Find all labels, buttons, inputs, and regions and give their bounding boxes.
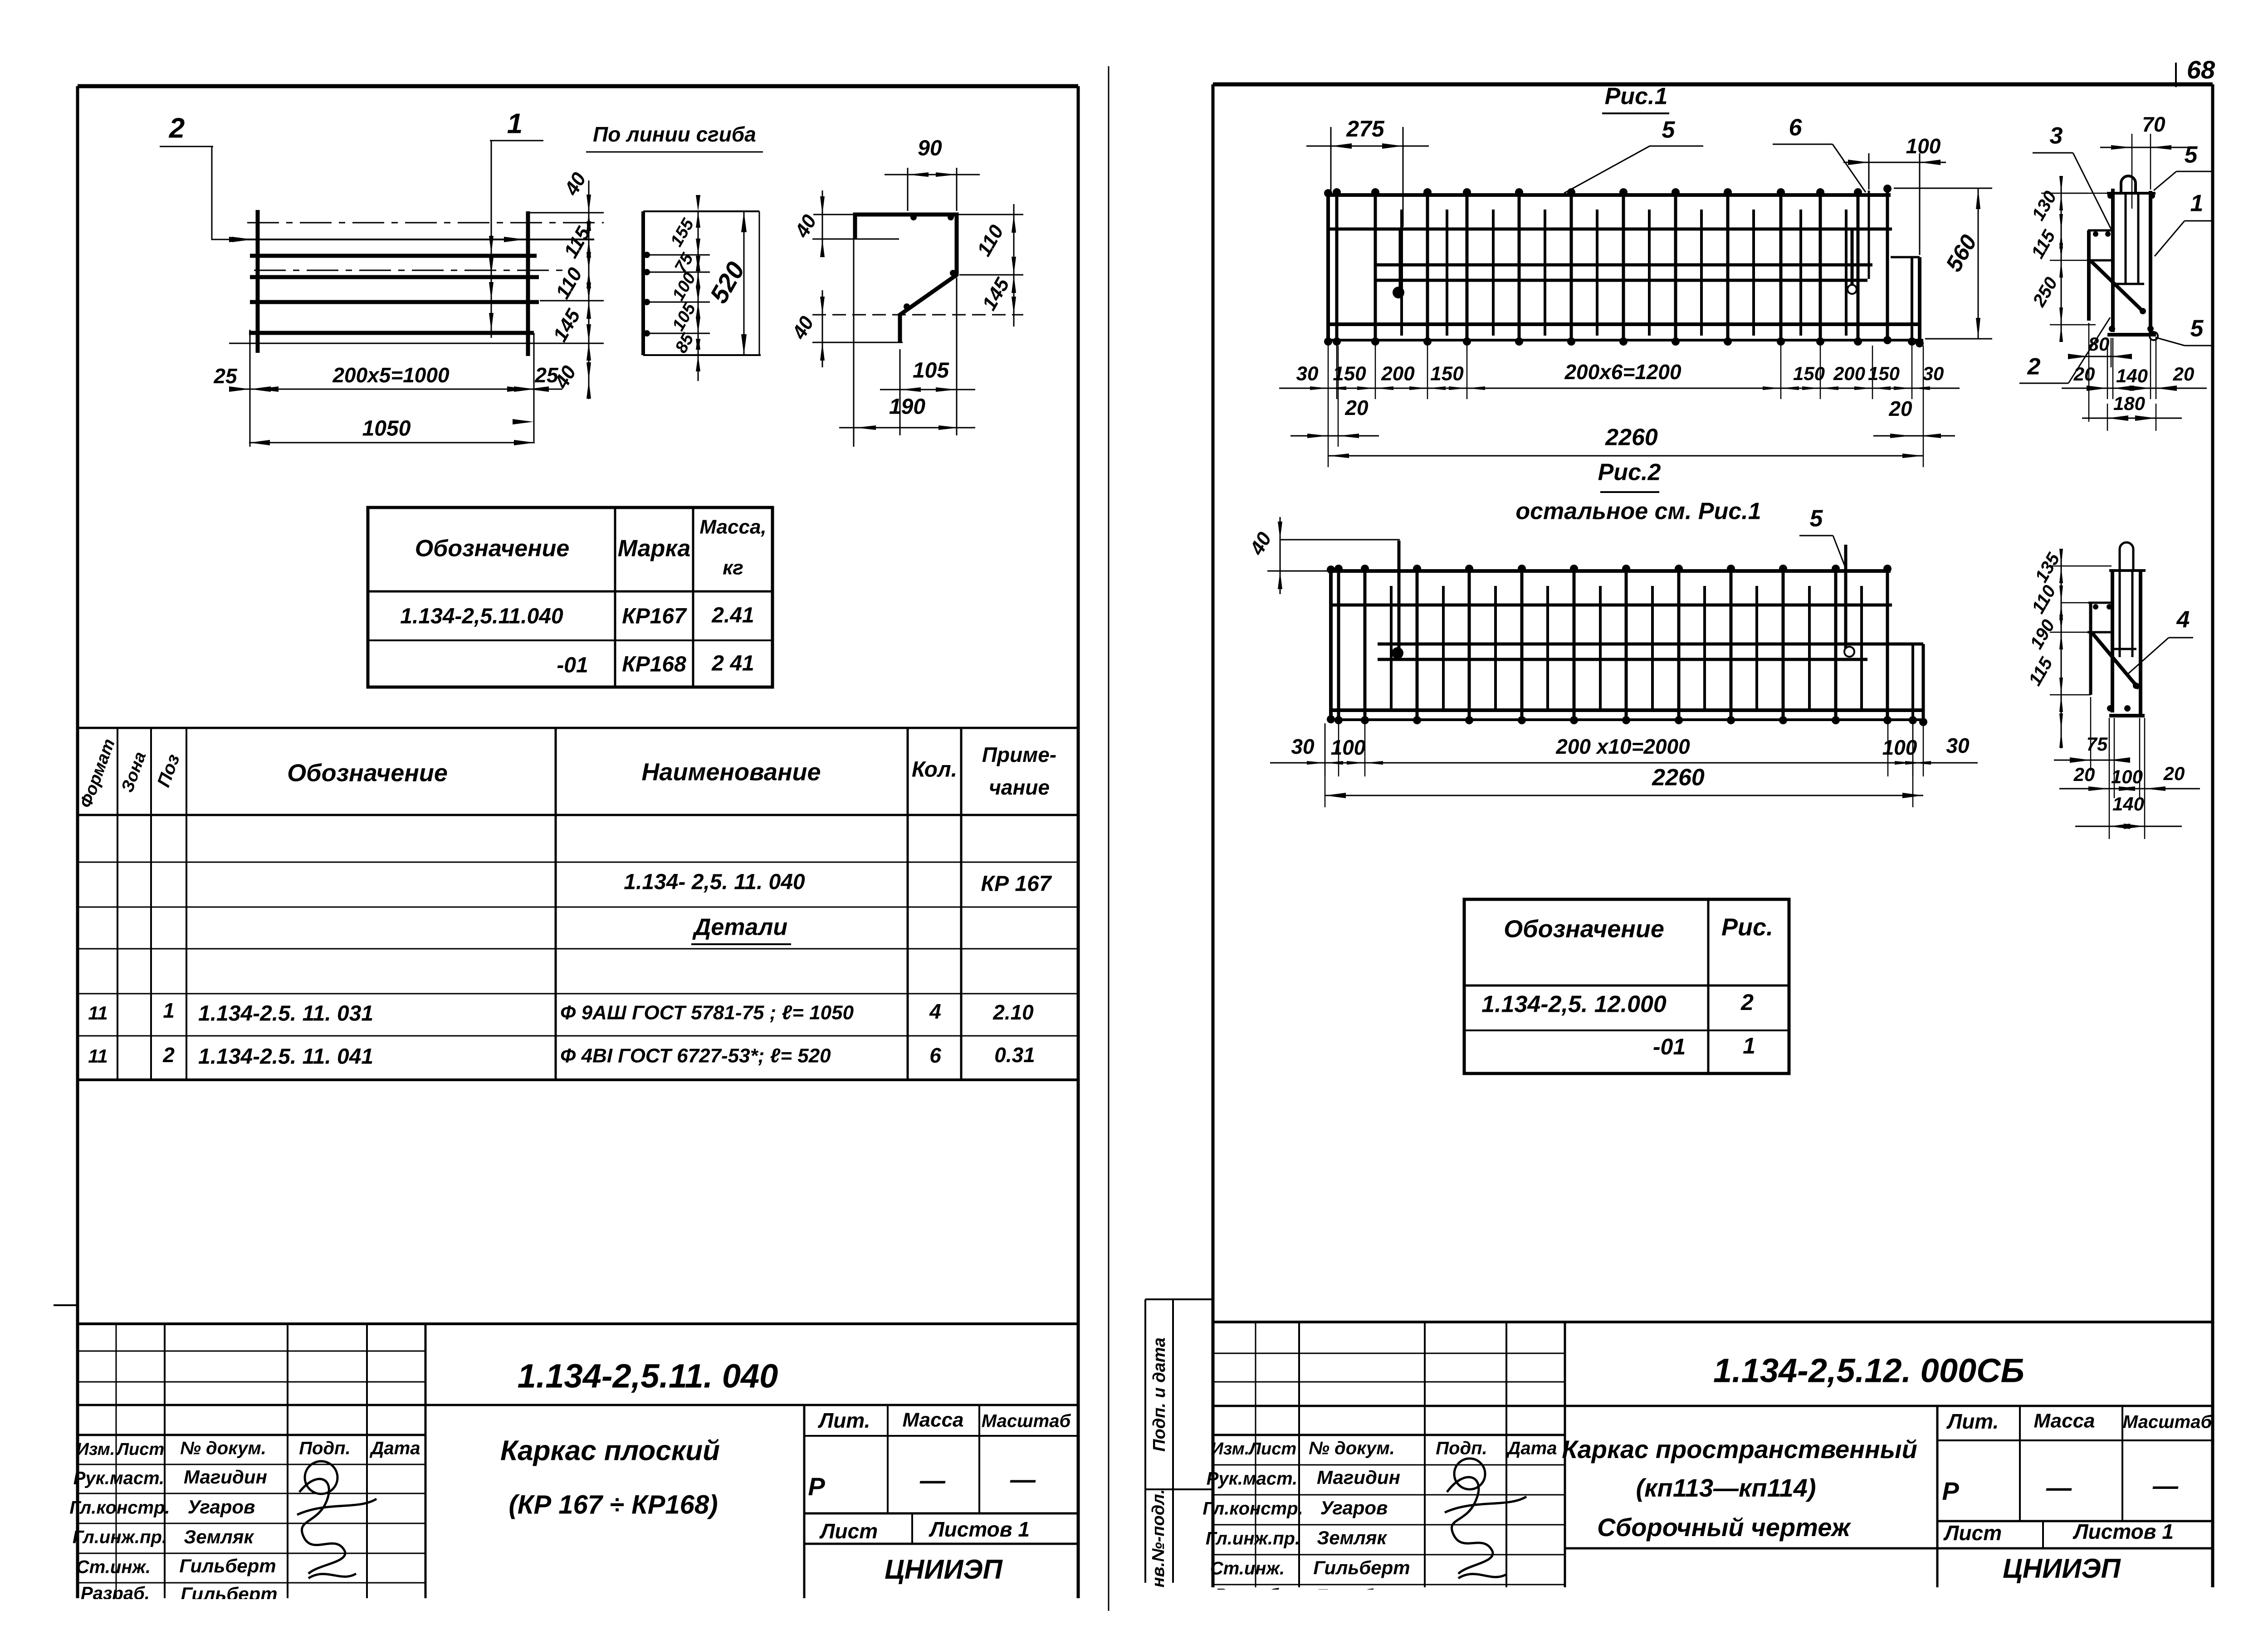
svg-text:80: 80 (2088, 333, 2110, 355)
svg-text:20: 20 (2163, 763, 2185, 784)
svg-text:190: 190 (889, 395, 925, 419)
svg-text:25: 25 (213, 364, 238, 388)
svg-text:—: — (2046, 1473, 2072, 1502)
svg-text:Гл.констр.: Гл.констр. (1202, 1499, 1303, 1519)
svg-text:Лист: Лист (116, 1440, 164, 1459)
svg-text:Масса: Масса (902, 1409, 963, 1431)
svg-text:11: 11 (88, 1002, 108, 1024)
svg-text:Листов 1: Листов 1 (929, 1517, 1030, 1541)
svg-text:кг: кг (723, 557, 743, 579)
svg-text:140: 140 (2116, 365, 2148, 386)
svg-text:(КР 167 ÷ КР168): (КР 167 ÷ КР168) (508, 1490, 718, 1519)
svg-text:Листов 1: Листов 1 (2072, 1520, 2174, 1543)
svg-text:-01: -01 (557, 654, 588, 678)
svg-text:№ докум.: № докум. (180, 1439, 266, 1459)
svg-text:Ст.инж.: Ст.инж. (1210, 1559, 1285, 1579)
svg-text:Изм.: Изм. (1211, 1439, 1250, 1459)
svg-text:180: 180 (2113, 393, 2145, 414)
svg-text:остальное см. Рис.1: остальное см. Рис.1 (1515, 498, 1761, 525)
svg-text:Приме-: Приме- (982, 743, 1056, 766)
svg-text:КР 167: КР 167 (981, 872, 1052, 896)
svg-text:Подп. и дата: Подп. и дата (1150, 1337, 1169, 1452)
svg-text:Масса: Масса (2033, 1410, 2095, 1432)
svg-text:Лит.: Лит. (1946, 1410, 1999, 1433)
svg-text:0.31: 0.31 (994, 1043, 1035, 1067)
svg-text:275: 275 (1346, 116, 1385, 141)
svg-text:100: 100 (1331, 736, 1366, 759)
svg-text:4: 4 (2176, 607, 2190, 633)
svg-text:2: 2 (169, 112, 185, 144)
svg-text:Р: Р (808, 1472, 825, 1501)
svg-text:По линии сгиба: По линии сгиба (593, 122, 756, 146)
svg-text:КР168: КР168 (622, 653, 686, 677)
svg-text:Рук.маст.: Рук.маст. (73, 1468, 165, 1488)
svg-text:Детали: Детали (692, 914, 787, 941)
svg-text:Магидин: Магидин (184, 1466, 267, 1488)
svg-text:Кол.: Кол. (912, 758, 957, 782)
svg-text:1: 1 (163, 999, 175, 1022)
svg-text:Гильберт: Гильберт (179, 1555, 276, 1576)
svg-text:Сборочный чертеж: Сборочный чертеж (1597, 1513, 1851, 1542)
svg-text:2 41: 2 41 (711, 652, 754, 676)
svg-text:Рис.: Рис. (1721, 913, 1773, 941)
svg-text:150: 150 (1793, 363, 1825, 384)
svg-text:Ст.инж.: Ст.инж. (76, 1557, 151, 1577)
svg-text:30: 30 (1946, 734, 1970, 757)
svg-text:70: 70 (2142, 112, 2165, 136)
svg-text:105: 105 (913, 359, 949, 383)
svg-text:Ф 9АШ ГОСТ 5781-75 ; ℓ= 1050: Ф 9АШ ГОСТ 5781-75 ; ℓ= 1050 (560, 1002, 854, 1024)
svg-text:200: 200 (1381, 363, 1415, 385)
svg-text:2: 2 (1740, 990, 1754, 1015)
svg-text:Обозначение: Обозначение (415, 536, 570, 562)
svg-text:1: 1 (1743, 1033, 1755, 1059)
svg-text:Дата: Дата (1506, 1439, 1557, 1459)
svg-text:1.134-2.5. 11. 031: 1.134-2.5. 11. 031 (198, 1002, 373, 1026)
svg-text:1: 1 (507, 108, 523, 139)
svg-text:Гильберт: Гильберт (1313, 1557, 1410, 1578)
svg-text:1050: 1050 (362, 417, 411, 441)
svg-text:20: 20 (1344, 396, 1369, 420)
svg-text:5: 5 (1662, 117, 1676, 143)
svg-text:Лист: Лист (1943, 1521, 2002, 1545)
svg-text:ЦНИИЭП: ЦНИИЭП (2003, 1553, 2121, 1584)
svg-text:2.41: 2.41 (711, 604, 754, 628)
svg-text:30: 30 (1296, 363, 1319, 385)
svg-text:20: 20 (2173, 363, 2195, 385)
svg-text:Ф 4ВI ГОСТ 6727-53*; ℓ= 520: Ф 4ВI ГОСТ 6727-53*; ℓ= 520 (560, 1045, 831, 1067)
svg-text:—: — (1010, 1465, 1036, 1493)
svg-text:-01: -01 (1653, 1034, 1686, 1059)
svg-text:20: 20 (2073, 764, 2095, 785)
svg-text:1.134-2.5. 11. 041: 1.134-2.5. 11. 041 (198, 1045, 373, 1069)
svg-text:Лит.: Лит. (818, 1409, 870, 1432)
svg-text:1.134-2,5.12. 000СБ: 1.134-2,5.12. 000СБ (1713, 1352, 2024, 1390)
svg-text:75: 75 (2087, 733, 2108, 755)
svg-text:140: 140 (2112, 793, 2144, 815)
svg-text:Земляк: Земляк (184, 1526, 254, 1547)
svg-text:200: 200 (1833, 363, 1865, 384)
svg-text:6: 6 (929, 1044, 941, 1067)
svg-text:2: 2 (162, 1043, 175, 1067)
svg-text:200x6=1200: 200x6=1200 (1564, 360, 1681, 384)
svg-text:—: — (919, 1466, 946, 1494)
svg-text:Дата: Дата (370, 1439, 420, 1459)
svg-text:5: 5 (1810, 506, 1823, 532)
svg-text:Изм.: Изм. (77, 1440, 115, 1459)
svg-text:2: 2 (2027, 354, 2041, 380)
svg-text:100: 100 (1906, 134, 1941, 158)
svg-text:Лист: Лист (1248, 1439, 1296, 1459)
svg-text:Земляк: Земляк (1317, 1527, 1387, 1548)
svg-text:1.134-2,5. 12.000: 1.134-2,5. 12.000 (1481, 991, 1667, 1018)
svg-text:90: 90 (918, 137, 942, 161)
svg-text:нв.№-подл.: нв.№-подл. (1149, 1489, 1168, 1588)
svg-text:Магидин: Магидин (1317, 1467, 1400, 1488)
svg-text:200x5=1000: 200x5=1000 (332, 363, 450, 387)
svg-text:1: 1 (2190, 190, 2204, 217)
svg-text:Гл.инж.пр.: Гл.инж.пр. (73, 1527, 167, 1547)
svg-text:Гл.констр.: Гл.констр. (69, 1498, 170, 1518)
svg-text:ЦНИИЭП: ЦНИИЭП (885, 1554, 1003, 1585)
svg-text:чание: чание (989, 776, 1050, 799)
svg-text:30: 30 (1923, 363, 1944, 384)
svg-text:№ докум.: № докум. (1309, 1439, 1395, 1459)
svg-text:—: — (2152, 1471, 2179, 1500)
svg-text:2260: 2260 (1652, 765, 1705, 791)
svg-text:200 x10=2000: 200 x10=2000 (1555, 735, 1690, 758)
svg-text:6: 6 (1789, 115, 1803, 141)
svg-text:2260: 2260 (1605, 424, 1658, 451)
svg-text:1.134-2,5.11. 040: 1.134-2,5.11. 040 (518, 1357, 778, 1395)
svg-text:Рис.1: Рис.1 (1605, 83, 1668, 110)
svg-text:20: 20 (1888, 397, 1912, 420)
svg-text:100: 100 (2111, 766, 2143, 787)
svg-text:150: 150 (1868, 363, 1900, 384)
svg-text:Подп.: Подп. (1436, 1439, 1487, 1459)
svg-text:1.134- 2,5. 11. 040: 1.134- 2,5. 11. 040 (624, 870, 805, 894)
svg-text:2.10: 2.10 (992, 1000, 1034, 1024)
svg-text:Наименование: Наименование (641, 758, 821, 785)
svg-text:11: 11 (88, 1045, 108, 1067)
svg-text:4: 4 (929, 1000, 941, 1023)
svg-text:Масштаб: Масштаб (982, 1411, 1071, 1431)
svg-text:(кп113—кп114): (кп113—кп114) (1636, 1473, 1816, 1502)
svg-text:Угаров: Угаров (188, 1496, 255, 1517)
svg-text:68: 68 (2187, 55, 2215, 84)
svg-text:Лист: Лист (819, 1519, 878, 1543)
svg-text:Марка: Марка (618, 536, 691, 562)
svg-text:1.134-2,5.11.040: 1.134-2,5.11.040 (400, 605, 563, 629)
svg-text:5: 5 (2190, 316, 2204, 342)
svg-text:Угаров: Угаров (1320, 1497, 1388, 1518)
svg-text:КР167: КР167 (622, 605, 687, 629)
svg-text:Масса,: Масса, (699, 516, 766, 538)
svg-text:Гл.инж.пр.: Гл.инж.пр. (1206, 1529, 1300, 1549)
svg-text:Р: Р (1942, 1477, 1959, 1505)
svg-text:3: 3 (2050, 123, 2063, 149)
svg-text:5: 5 (2185, 142, 2198, 168)
svg-text:100: 100 (1882, 736, 1917, 759)
svg-text:Обозначение: Обозначение (1504, 915, 1664, 942)
svg-text:150: 150 (1430, 363, 1464, 385)
svg-text:Каркас плоский: Каркас плоский (500, 1435, 720, 1466)
svg-text:Обозначение: Обозначение (287, 759, 448, 786)
svg-text:Рук.маст.: Рук.маст. (1207, 1469, 1298, 1489)
svg-text:30: 30 (1291, 735, 1315, 758)
svg-text:Подп.: Подп. (299, 1439, 350, 1459)
svg-text:Рис.2: Рис.2 (1598, 459, 1661, 486)
svg-text:Масштаб: Масштаб (2123, 1412, 2213, 1432)
svg-text:Каркас пространственный: Каркас пространственный (1562, 1435, 1917, 1464)
svg-text:20: 20 (2073, 363, 2095, 385)
